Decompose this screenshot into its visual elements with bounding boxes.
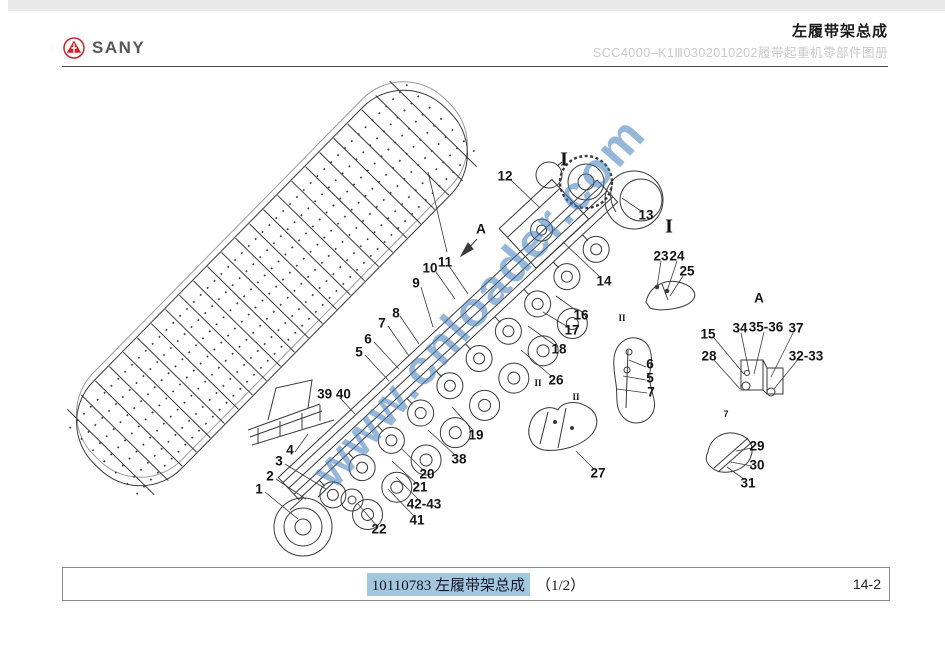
part-label: 34 — [732, 321, 747, 336]
part-label: 38 — [451, 452, 466, 467]
part-label: 29 — [749, 439, 764, 454]
part-label: 14 — [596, 274, 611, 289]
part-label: 42-43 — [407, 497, 442, 512]
part-label: 32-33 — [789, 349, 824, 364]
part-label: 18 — [551, 342, 566, 357]
part-label: 10 — [422, 261, 437, 276]
guard-piece — [529, 403, 597, 451]
idler-wheel — [274, 481, 363, 556]
part-label: 19 — [468, 428, 483, 443]
part-label: 5 — [355, 345, 363, 360]
part-label: 7 — [723, 409, 728, 419]
part-label: 9 — [412, 276, 420, 291]
part-label: A — [476, 222, 486, 237]
part-label: 1 — [255, 482, 263, 497]
part-label: 24 — [669, 249, 684, 264]
part-label: I — [560, 149, 568, 172]
part-label: 17 — [564, 323, 579, 338]
part-label: 35-36 — [749, 320, 784, 335]
page-number: 14-2 — [853, 568, 881, 600]
part-label: A — [754, 291, 764, 306]
part-label: 41 — [409, 513, 424, 528]
part-label: 8 — [392, 306, 400, 321]
part-label: 22 — [371, 522, 386, 537]
part-label: 27 — [590, 466, 605, 481]
part-label: 25 — [679, 264, 694, 279]
part-name: 左履带架总成 — [435, 578, 525, 594]
track-shoe-band — [48, 58, 495, 510]
track-frame-beam — [278, 180, 667, 553]
part-label: 37 — [788, 321, 803, 336]
part-number: 10110783 — [372, 578, 431, 594]
footer-caption: 10110783 左履带架总成 （1/2） — [63, 568, 889, 600]
footer-bar: 10110783 左履带架总成 （1/2） 14-2 — [62, 567, 890, 601]
part-label: 23 — [653, 249, 668, 264]
part-label: 31 — [740, 476, 755, 491]
part-label: I — [665, 216, 673, 239]
part-label: II — [534, 378, 541, 388]
part-label: 5 — [646, 371, 654, 386]
part-label: 12 — [497, 169, 512, 184]
part-label: 28 — [701, 349, 716, 364]
part-label: 21 — [412, 480, 427, 495]
part-label: 4 — [286, 443, 294, 458]
part-label: 26 — [548, 373, 563, 388]
part-label: 2 — [266, 469, 274, 484]
part-label: II — [572, 392, 579, 402]
part-label: 6 — [646, 357, 654, 372]
part-number-highlight: 10110783 左履带架总成 — [367, 573, 530, 596]
part-label: 6 — [364, 332, 372, 347]
part-label: 7 — [378, 316, 386, 331]
part-label: 39 40 — [317, 387, 351, 402]
part-label: 16 — [573, 308, 588, 323]
sheet-indicator: （1/2） — [536, 574, 585, 595]
wedge-piece — [706, 433, 752, 472]
part-label: II — [618, 313, 625, 323]
part-label: 13 — [638, 208, 653, 223]
part-label: 15 — [700, 327, 715, 342]
part-label: 3 — [275, 454, 283, 469]
part-label: 30 — [749, 458, 764, 473]
part-label: 11 — [438, 255, 452, 270]
catalog-page: SANY 左履带架总成 SCC4000–K1Ⅲ0302010202履带起重机零部… — [0, 0, 945, 653]
part-label: 7 — [647, 385, 655, 400]
